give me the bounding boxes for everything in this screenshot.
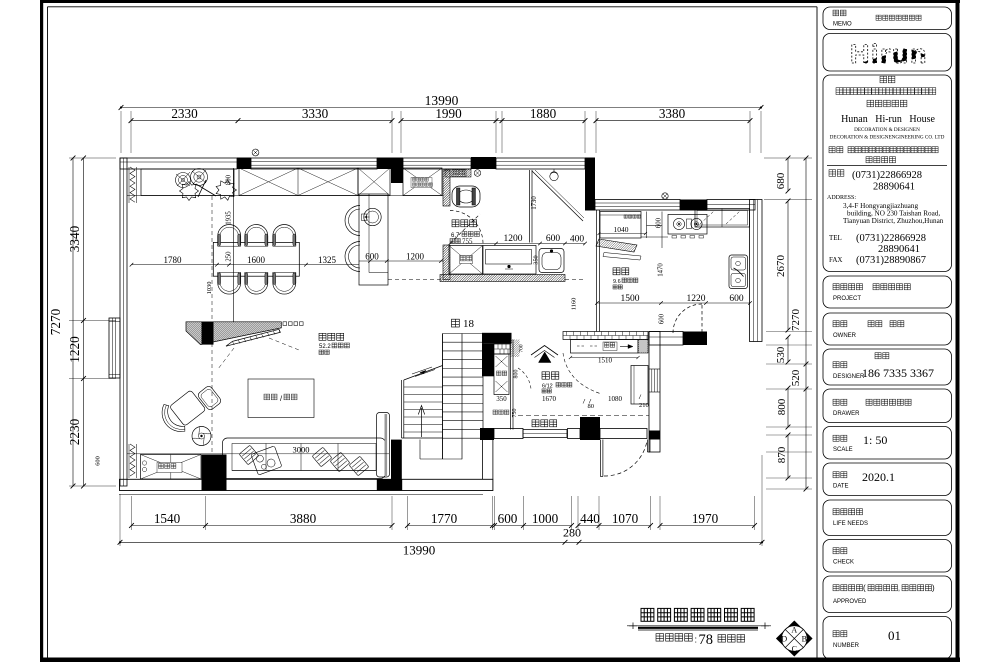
svg-text:1880: 1880 xyxy=(530,106,557,121)
svg-text:1070: 1070 xyxy=(612,511,639,526)
svg-text:): ) xyxy=(932,584,935,593)
svg-text:MEMO: MEMO xyxy=(833,22,852,28)
svg-text:280: 280 xyxy=(563,526,581,540)
svg-text:530: 530 xyxy=(775,346,787,363)
svg-text:A: A xyxy=(791,626,797,635)
svg-text:1200: 1200 xyxy=(504,234,523,244)
svg-text:APPROVED: APPROVED xyxy=(833,599,867,605)
svg-text:1935: 1935 xyxy=(226,211,233,225)
svg-text:1080: 1080 xyxy=(608,395,623,403)
svg-text:1510: 1510 xyxy=(598,357,613,365)
svg-text:DECORATION & DESIGNENGINEERING: DECORATION & DESIGNENGINEERING CO. LTD xyxy=(830,135,945,141)
svg-text:1780: 1780 xyxy=(164,255,183,265)
svg-text:600: 600 xyxy=(659,313,666,324)
svg-text:(: ( xyxy=(863,584,866,593)
svg-text:1470: 1470 xyxy=(658,263,665,277)
svg-text:C: C xyxy=(792,645,797,654)
svg-text:750: 750 xyxy=(512,409,518,418)
svg-text:1540: 1540 xyxy=(154,511,181,526)
svg-text:PROJECT: PROJECT xyxy=(833,296,861,302)
svg-text:78: 78 xyxy=(699,632,714,648)
svg-text::: : xyxy=(695,635,698,645)
svg-text:3330: 3330 xyxy=(302,106,329,121)
svg-text:1670: 1670 xyxy=(542,395,557,403)
svg-text:(0731)22866928: (0731)22866928 xyxy=(852,170,922,181)
svg-text:OWNER: OWNER xyxy=(833,333,857,339)
svg-text:DECORATION & DESIGNEN: DECORATION & DESIGNEN xyxy=(854,127,920,133)
svg-text:LIFE NEEDS: LIFE NEEDS xyxy=(833,521,868,527)
svg-text:28890641: 28890641 xyxy=(878,244,920,255)
svg-text:186 7335 3367: 186 7335 3367 xyxy=(862,366,934,380)
svg-text:D: D xyxy=(781,635,787,644)
svg-text:28890641: 28890641 xyxy=(873,182,915,193)
svg-text:3380: 3380 xyxy=(659,106,686,121)
svg-text:600: 600 xyxy=(729,294,744,304)
svg-text:800: 800 xyxy=(776,398,788,415)
svg-text:800: 800 xyxy=(514,370,520,379)
svg-text:1040: 1040 xyxy=(614,225,629,234)
svg-text:2670: 2670 xyxy=(775,255,787,278)
svg-text:1000: 1000 xyxy=(532,511,559,526)
svg-text:440: 440 xyxy=(580,511,600,526)
svg-text:01: 01 xyxy=(888,628,901,643)
svg-text:CHECK: CHECK xyxy=(833,560,854,566)
svg-text:350: 350 xyxy=(533,255,540,264)
svg-text:FAX: FAX xyxy=(829,256,842,264)
svg-text:DRAWER: DRAWER xyxy=(833,411,860,417)
svg-text:1500: 1500 xyxy=(621,294,640,304)
svg-text:,: , xyxy=(898,586,900,593)
svg-text:1220: 1220 xyxy=(67,336,82,363)
svg-text:Hunan Hi-run House: Hunan Hi-run House xyxy=(841,114,935,125)
svg-text:B: B xyxy=(802,635,807,644)
svg-text:600: 600 xyxy=(95,456,102,466)
svg-text:(0731)22866928: (0731)22866928 xyxy=(856,233,926,244)
svg-text:Tianyuan District, Zhuzhou,Hun: Tianyuan District, Zhuzhou,Hunan xyxy=(843,217,944,225)
svg-text:DESIGNER: DESIGNER xyxy=(833,374,865,380)
svg-text:2230: 2230 xyxy=(67,418,82,445)
svg-text:3000: 3000 xyxy=(293,445,310,455)
svg-text:3340: 3340 xyxy=(67,225,82,252)
svg-text:1: 50: 1: 50 xyxy=(863,433,887,447)
svg-text:2020.1: 2020.1 xyxy=(862,470,895,484)
svg-text:600: 600 xyxy=(498,511,518,526)
svg-text:1730: 1730 xyxy=(531,196,538,210)
svg-text:7270: 7270 xyxy=(48,308,63,335)
svg-text:870: 870 xyxy=(776,446,788,463)
svg-text:210: 210 xyxy=(639,402,649,409)
svg-text:18: 18 xyxy=(463,318,475,330)
svg-text:TEL: TEL xyxy=(829,234,842,242)
svg-text:1600: 1600 xyxy=(247,255,266,265)
svg-text:1990: 1990 xyxy=(435,106,462,121)
svg-text:600: 600 xyxy=(365,252,379,262)
svg-text:1970: 1970 xyxy=(692,511,719,526)
svg-text:1770: 1770 xyxy=(431,511,458,526)
svg-text:600: 600 xyxy=(546,234,561,244)
svg-text:1200: 1200 xyxy=(406,252,425,262)
svg-text:2330: 2330 xyxy=(171,106,198,121)
svg-text:13990: 13990 xyxy=(403,543,436,558)
svg-text:(0731)28890867: (0731)28890867 xyxy=(856,255,926,266)
svg-text:250: 250 xyxy=(226,251,233,262)
svg-text:1325: 1325 xyxy=(318,255,337,265)
svg-text:NUMBER: NUMBER xyxy=(833,643,860,649)
svg-text:400: 400 xyxy=(570,235,585,245)
svg-text:1220: 1220 xyxy=(687,294,706,304)
svg-text:ADDRESS:: ADDRESS: xyxy=(827,195,856,201)
svg-text:520: 520 xyxy=(790,369,802,386)
svg-text:700: 700 xyxy=(519,344,525,353)
svg-text:DATE: DATE xyxy=(833,484,849,490)
svg-text:680: 680 xyxy=(775,172,787,189)
svg-text:800: 800 xyxy=(226,174,233,185)
svg-text:7270: 7270 xyxy=(790,309,802,332)
svg-text:52.2: 52.2 xyxy=(319,344,331,350)
svg-text:1030: 1030 xyxy=(206,282,213,295)
svg-text:80: 80 xyxy=(588,403,595,410)
svg-text:350: 350 xyxy=(496,396,507,403)
svg-text:9.6: 9.6 xyxy=(613,279,621,285)
svg-text:SCALE: SCALE xyxy=(833,447,853,453)
svg-text:1160: 1160 xyxy=(571,298,578,311)
svg-text:3880: 3880 xyxy=(290,511,317,526)
svg-text:600: 600 xyxy=(656,217,663,228)
svg-text:755: 755 xyxy=(462,238,473,246)
svg-text:6/12: 6/12 xyxy=(542,384,553,390)
